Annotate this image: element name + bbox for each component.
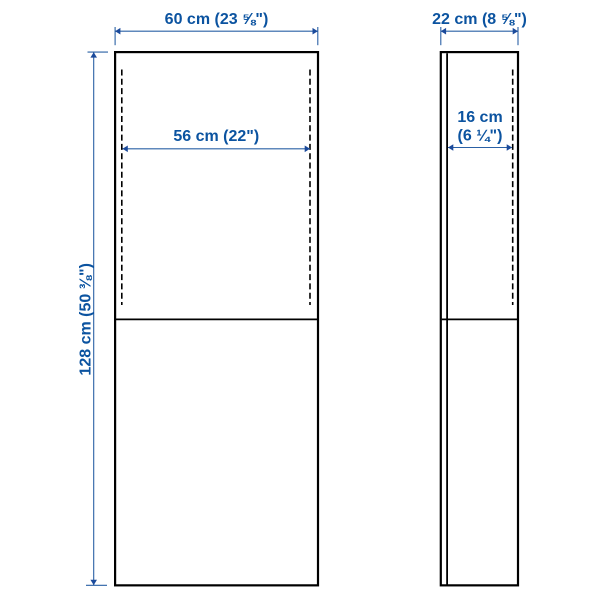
svg-text:16 cm: 16 cm [457, 109, 502, 126]
svg-text:128 cm (50 ⅜"): 128 cm (50 ⅜") [78, 263, 95, 376]
svg-text:60 cm (23 ⅝"): 60 cm (23 ⅝") [165, 11, 269, 28]
svg-text:56 cm (22"): 56 cm (22") [173, 128, 259, 145]
svg-text:22 cm (8 ⅝"): 22 cm (8 ⅝") [432, 11, 527, 28]
svg-text:(6 ¼"): (6 ¼") [458, 127, 503, 144]
